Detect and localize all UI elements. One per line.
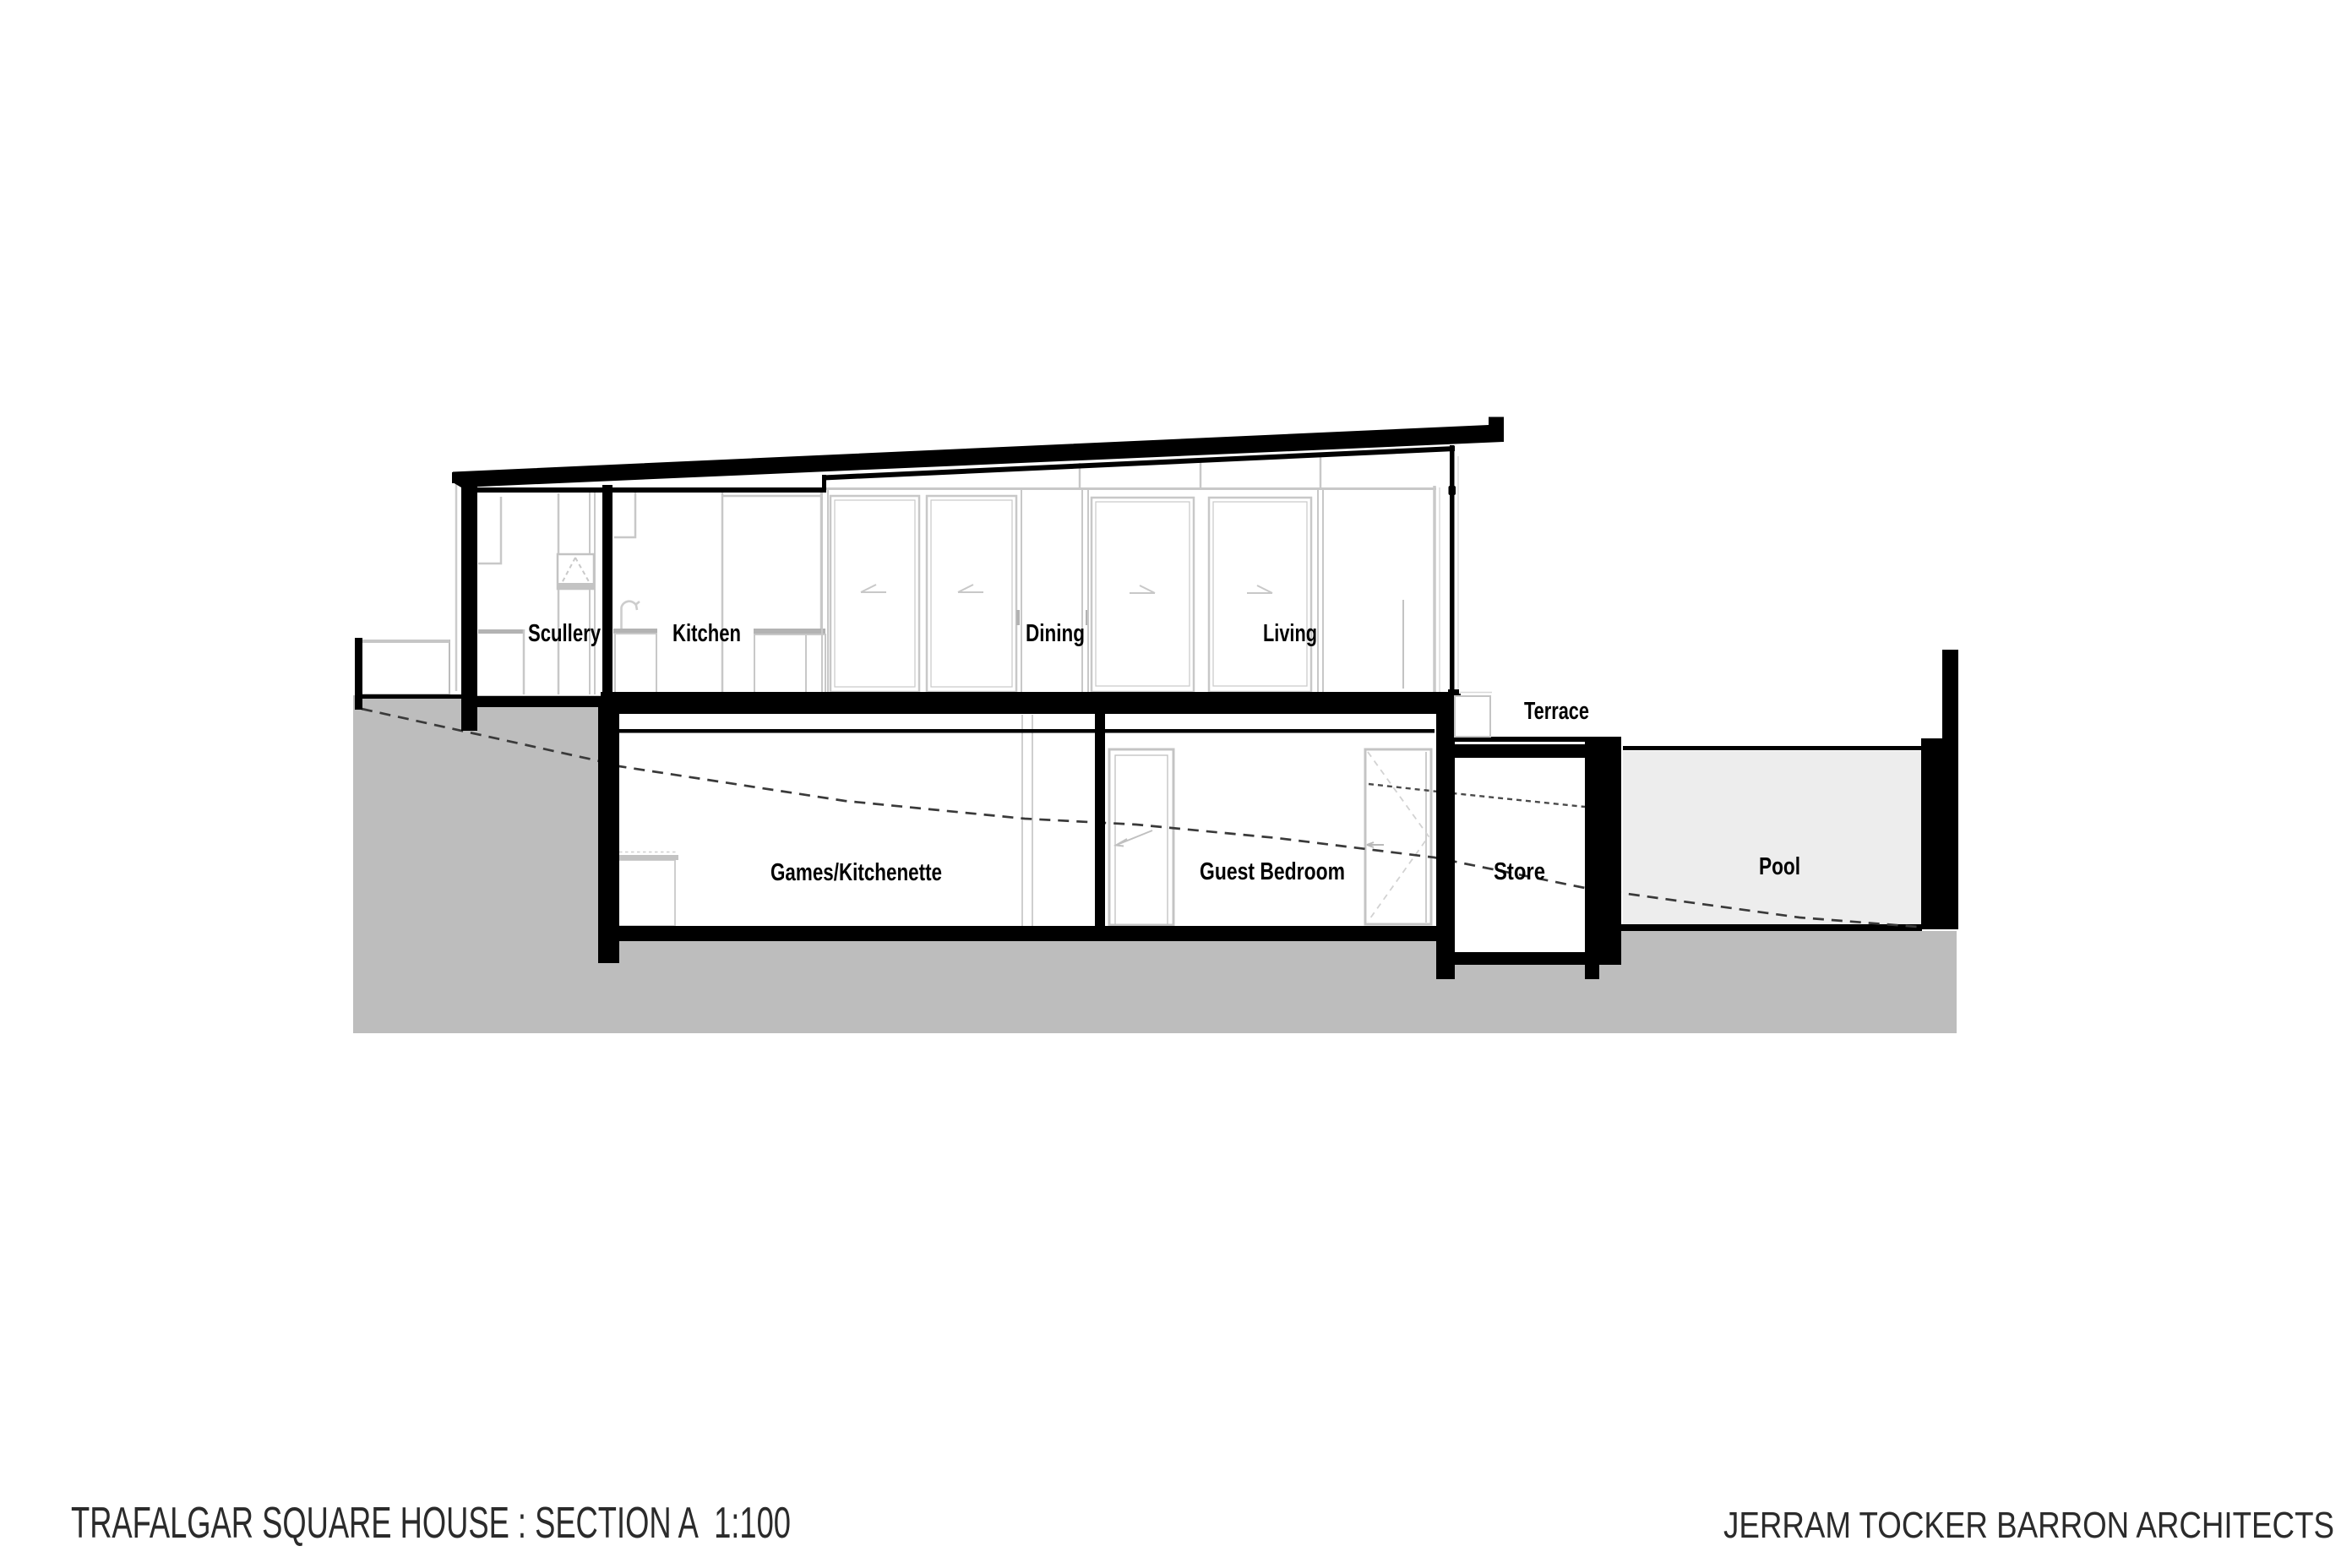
svg-text:Living: Living <box>1263 620 1317 647</box>
svg-text:Dining: Dining <box>1026 620 1085 647</box>
svg-text:Kitchen: Kitchen <box>672 620 741 647</box>
svg-text:TRAFALGAR SQUARE HOUSE : SECTI: TRAFALGAR SQUARE HOUSE : SECTION A 1:100 <box>71 1499 791 1548</box>
svg-text:JERRAM TOCKER BARRON ARCHITECT: JERRAM TOCKER BARRON ARCHITECTS <box>1723 1505 2334 1546</box>
svg-text:Scullery: Scullery <box>528 620 601 647</box>
svg-text:Games/Kitchenette: Games/Kitchenette <box>770 859 942 886</box>
svg-text:Guest Bedroom: Guest Bedroom <box>1200 858 1345 885</box>
svg-text:Pool: Pool <box>1759 853 1800 880</box>
svg-text:Terrace: Terrace <box>1524 698 1589 725</box>
svg-text:Store: Store <box>1494 858 1545 885</box>
